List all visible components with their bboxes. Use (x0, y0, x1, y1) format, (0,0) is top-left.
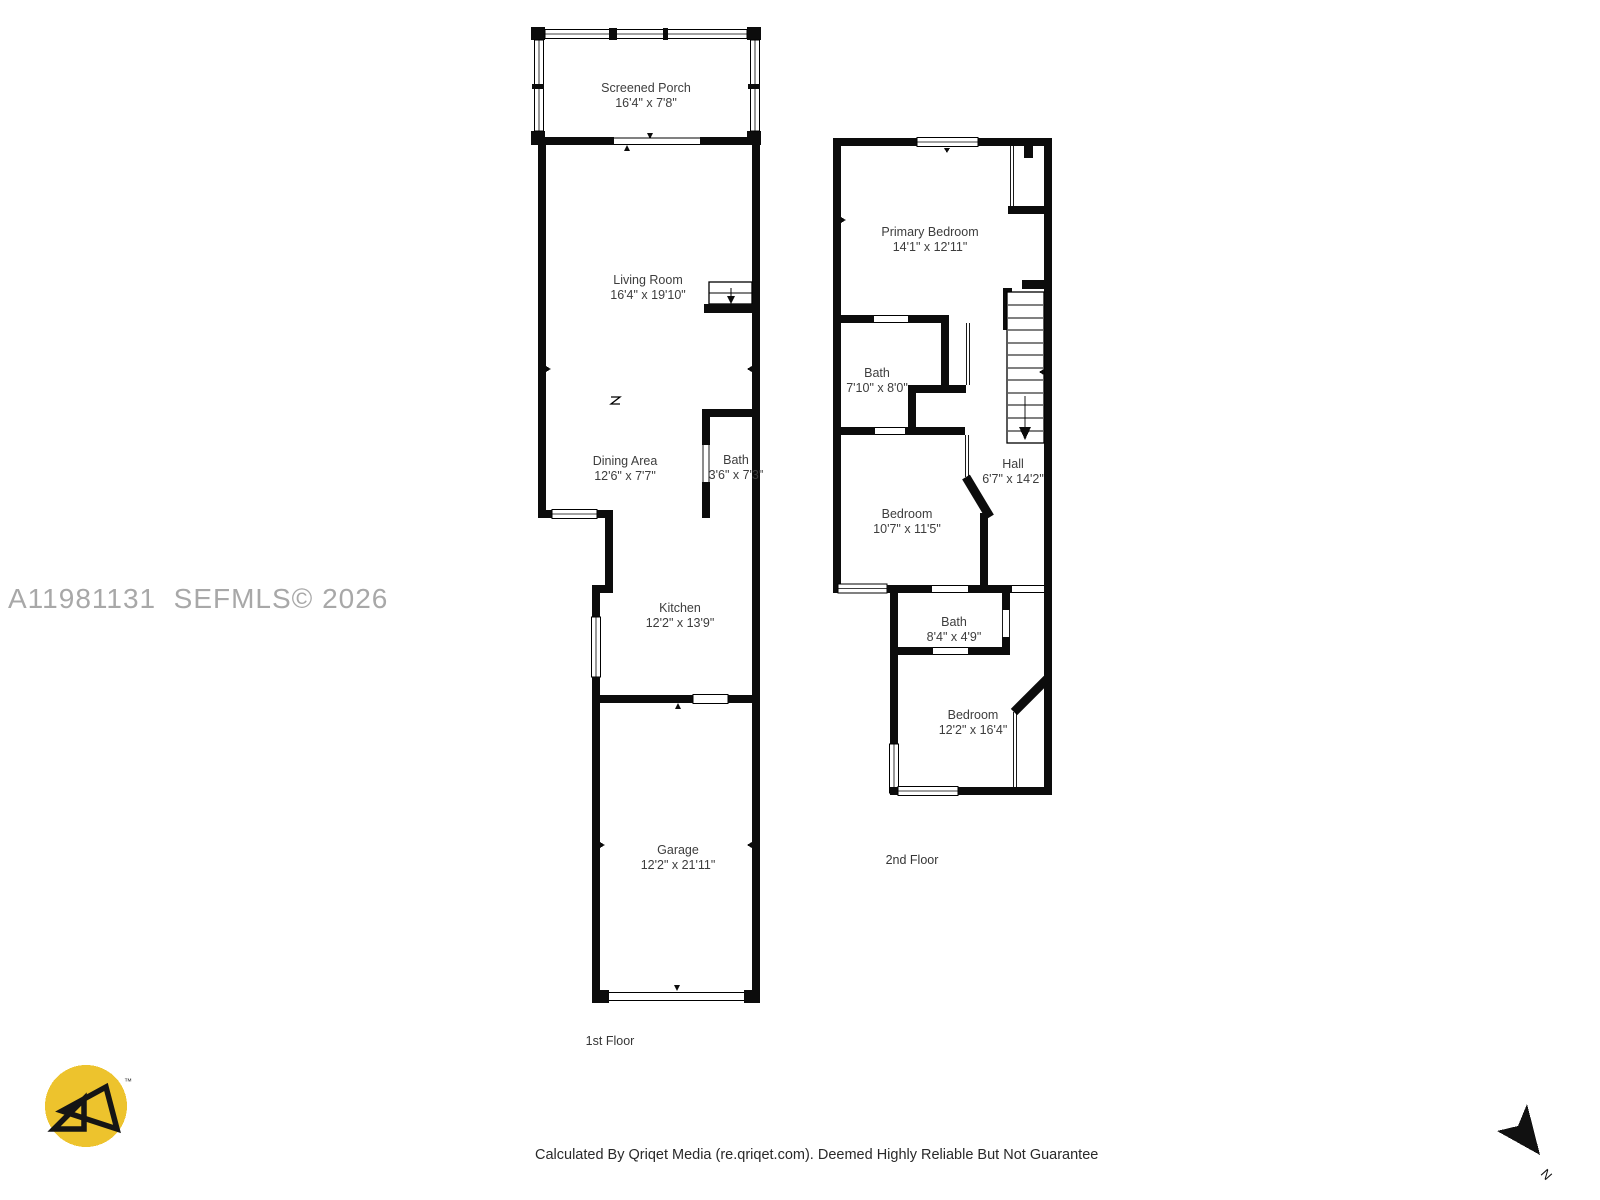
room-name: Dining Area (593, 454, 658, 469)
room-label-bath-1: Bath 3'6" x 7'3" (709, 453, 764, 482)
room-dims: 6'7" x 14'2" (982, 472, 1044, 487)
mls-watermark: A11981131 SEFMLS© 2026 (8, 583, 388, 615)
room-name: Kitchen (646, 601, 715, 616)
room-label-bath-lower: Bath 8'4" x 4'9" (927, 615, 982, 644)
room-name: Hall (982, 457, 1044, 472)
room-name: Living Room (610, 273, 686, 288)
room-dims: 8'4" x 4'9" (927, 630, 982, 645)
room-label-bath-upper: Bath 7'10" x 8'0" (846, 366, 908, 395)
room-dims: 12'2" x 16'4" (939, 723, 1008, 738)
room-label-garage: Garage 12'2" x 21'11" (641, 843, 716, 872)
room-dims: 12'2" x 13'9" (646, 616, 715, 631)
floor1-label: 1st Floor (586, 1034, 635, 1048)
room-name: Bath (846, 366, 908, 381)
room-dims: 12'6" x 7'7" (593, 469, 658, 484)
room-label-kitchen: Kitchen 12'2" x 13'9" (646, 601, 715, 630)
room-label-primary-bedroom: Primary Bedroom 14'1" x 12'11" (881, 225, 978, 254)
room-dims: 16'4" x 19'10" (610, 288, 686, 303)
stairs-first-floor (704, 282, 760, 313)
room-name: Bedroom (873, 507, 941, 522)
stairs-second-floor (1007, 292, 1044, 443)
qriqet-logo: ™ (45, 1065, 132, 1147)
logo-tm-mark: ™ (124, 1077, 132, 1086)
room-name: Bedroom (939, 708, 1008, 723)
room-dims: 12'2" x 21'11" (641, 858, 716, 873)
room-dims: 14'1" x 12'11" (881, 240, 978, 255)
room-dims: 10'7" x 11'5" (873, 522, 941, 537)
room-name: Primary Bedroom (881, 225, 978, 240)
room-label-screened-porch: Screened Porch 16'4" x 7'8" (601, 81, 691, 110)
room-name: Bath (927, 615, 982, 630)
room-label-living-room: Living Room 16'4" x 19'10" (610, 273, 686, 302)
room-name: Garage (641, 843, 716, 858)
room-dims: 16'4" x 7'8" (601, 96, 691, 111)
floor2-label: 2nd Floor (886, 853, 939, 867)
room-name: Screened Porch (601, 81, 691, 96)
room-label-hall: Hall 6'7" x 14'2" (982, 457, 1044, 486)
room-dims: 7'10" x 8'0" (846, 381, 908, 396)
symbol-mark (611, 397, 620, 404)
room-name: Bath (709, 453, 764, 468)
room-label-bedroom-upper: Bedroom 10'7" x 11'5" (873, 507, 941, 536)
room-label-dining-area: Dining Area 12'6" x 7'7" (593, 454, 658, 483)
room-label-bedroom-lower: Bedroom 12'2" x 16'4" (939, 708, 1008, 737)
room-dims: 3'6" x 7'3" (709, 468, 764, 483)
compass-n-label: N (1538, 1166, 1555, 1183)
disclaimer-text: Calculated By Qriqet Media (re.qriqet.co… (535, 1147, 1098, 1163)
compass-north-arrow: N (1497, 1104, 1555, 1183)
